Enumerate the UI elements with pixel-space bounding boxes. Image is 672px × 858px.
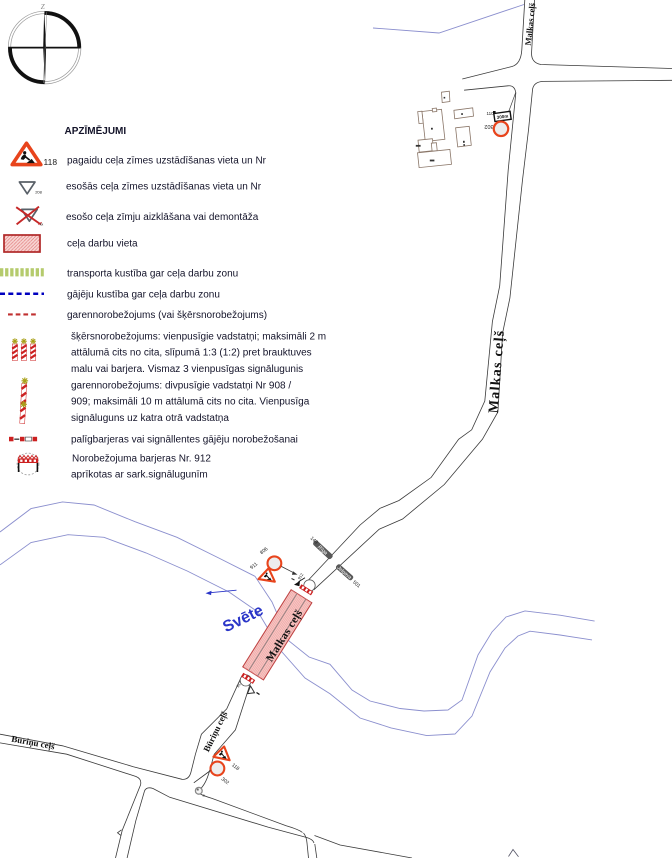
svg-text:Būriņu ceļš: Būriņu ceļš: [201, 709, 230, 754]
svg-text:gājēju kustība gar ceļa darbu: gājēju kustība gar ceļa darbu zonu: [67, 289, 220, 300]
svg-text:911: 911: [249, 561, 259, 571]
svg-text:118: 118: [44, 157, 58, 167]
svg-text:esošo ceļa zīmju aizklāšana va: esošo ceļa zīmju aizklāšana vai demontāž…: [66, 212, 259, 223]
svg-text:malu vai barjera. Vismaz 3 vie: malu vai barjera. Vismaz 3 vienpusīgas s…: [71, 364, 303, 375]
svg-text:garennorobežojums: divpusīgie: garennorobežojums: divpusīgie vadstatņi …: [71, 381, 291, 392]
svg-text:transporta kustība gar ceļa da: transporta kustība gar ceļa darbu zonu: [67, 269, 238, 280]
svg-text:esošās ceļa zīmes uzstādīšanas: esošās ceļa zīmes uzstādīšanas vieta un …: [66, 182, 262, 193]
svg-text:909; maksimāli 10 m attālumā c: 909; maksimāli 10 m attālumā cits no cit…: [71, 397, 310, 408]
svg-text:Būriņu ceļš: Būriņu ceļš: [10, 734, 56, 753]
svg-text:501: 501: [351, 580, 361, 590]
svg-text:pagaidu ceļa zīmes uzstādīšana: pagaidu ceļa zīmes uzstādīšanas vieta un…: [67, 156, 267, 167]
svg-text:302: 302: [484, 123, 493, 129]
svg-text:garennorobežojums (vai šķērsno: garennorobežojums (vai šķērsnorobežojums…: [67, 310, 267, 321]
svg-text:Norobežojuma barjeras Nr. 912: Norobežojuma barjeras Nr. 912: [72, 454, 211, 465]
svg-text:attālumā cits no cita, slīpumā: attālumā cits no cita, slīpumā 1:3 (1:2)…: [71, 348, 312, 359]
svg-text:APZĪMĒJUMI: APZĪMĒJUMI: [65, 125, 127, 137]
svg-text:a: a: [203, 793, 206, 798]
svg-text:aprīkotas ar sark.signālugunīm: aprīkotas ar sark.signālugunīm: [71, 470, 208, 481]
svg-text:palīgbarjeras vai signāllentes: palīgbarjeras vai signāllentes gājēju no…: [71, 435, 298, 446]
svg-text:Malkas ceļš: Malkas ceļš: [487, 329, 509, 414]
svg-text:šķērsnorobežojums: vienpusīgie: šķērsnorobežojums: vienpusīgie vadstatņi…: [71, 332, 326, 343]
svg-text:208: 208: [35, 190, 42, 195]
svg-text:signāluguns uz katra otrā vads: signāluguns uz katra otrā vadstatņa: [71, 413, 229, 424]
svg-text:Malkas ceļš: Malkas ceļš: [523, 2, 538, 46]
svg-text:ceļa darbu vieta: ceļa darbu vieta: [67, 239, 138, 250]
svg-text:302: 302: [220, 776, 230, 786]
svg-text:Jelgava: Jelgava: [335, 564, 353, 581]
svg-text:806: 806: [259, 546, 269, 556]
svg-text:Z: Z: [41, 3, 45, 11]
svg-text:xx: xx: [40, 223, 44, 227]
svg-text:118: 118: [230, 762, 240, 772]
svg-text:Svēte: Svēte: [220, 602, 266, 636]
